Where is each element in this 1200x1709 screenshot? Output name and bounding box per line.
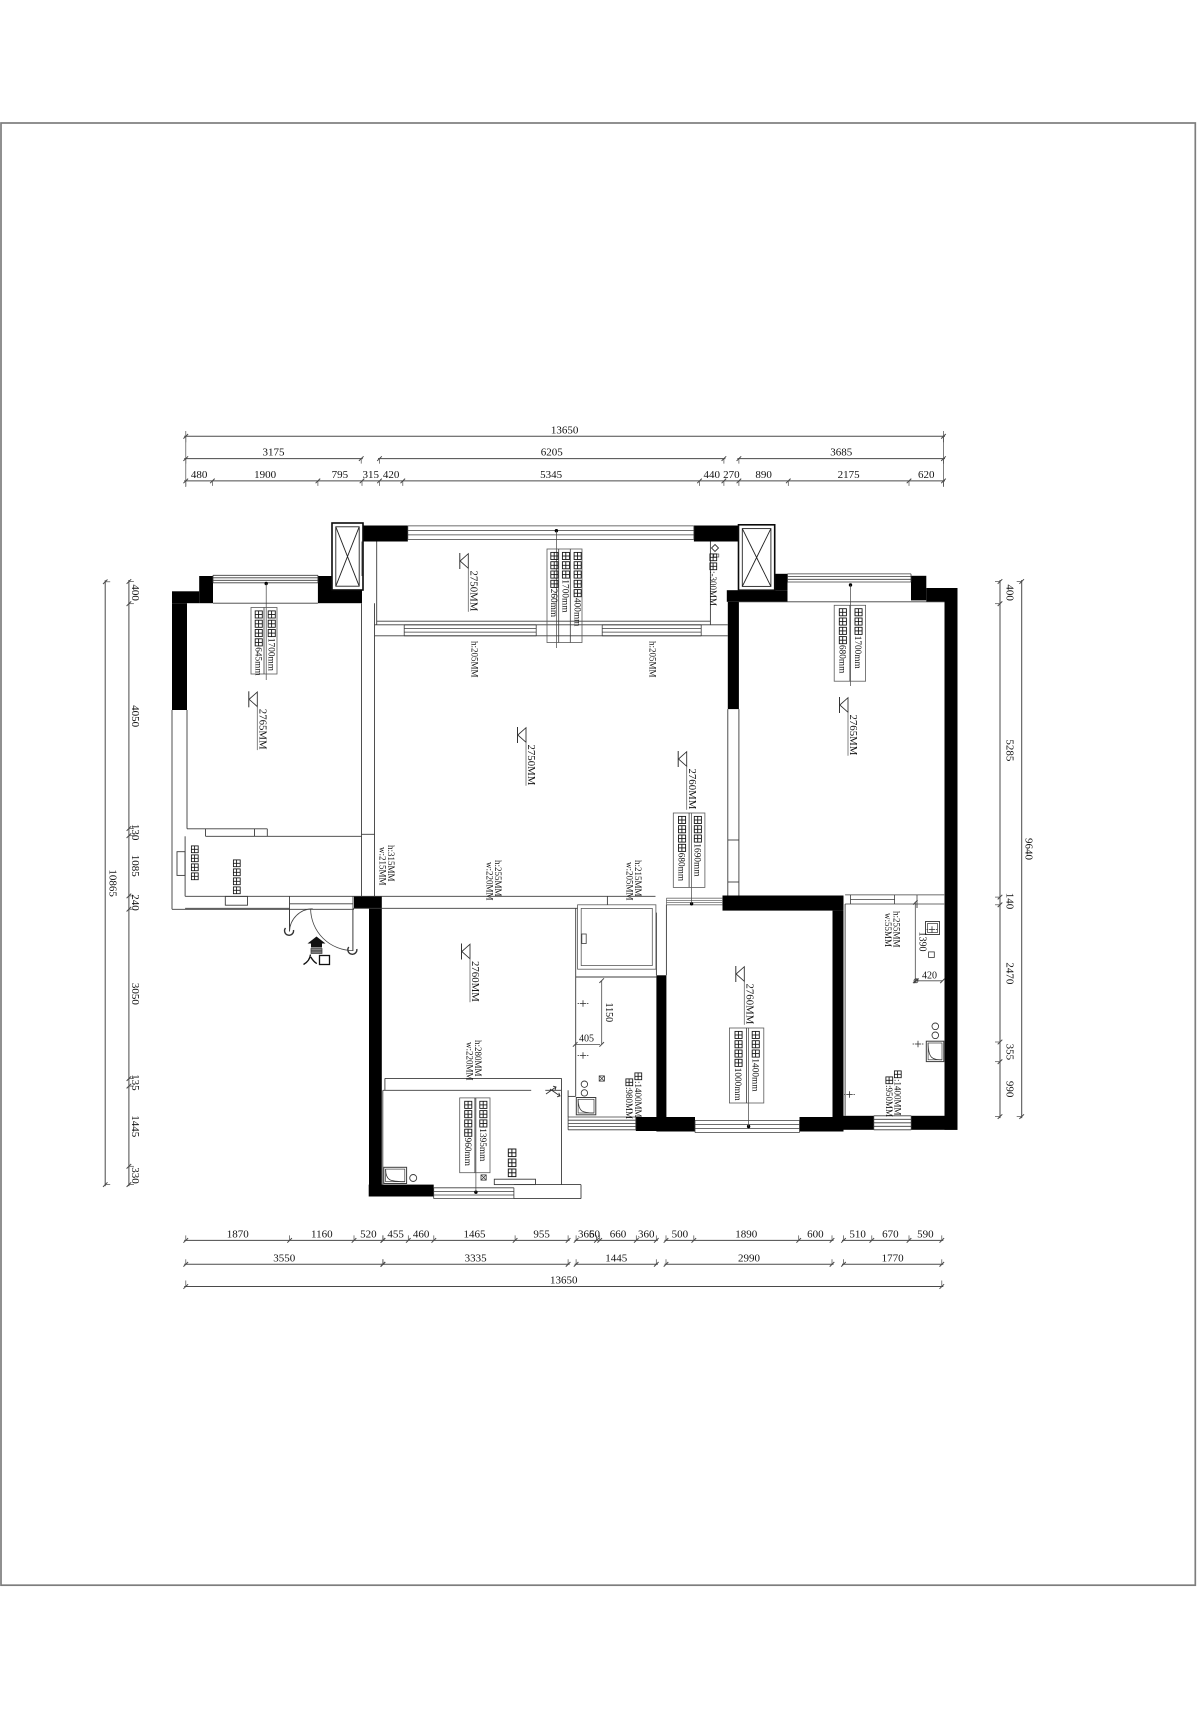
svg-text:h:205MM: h:205MM (648, 641, 658, 678)
svg-text:2750MM: 2750MM (468, 571, 480, 612)
svg-text:3685: 3685 (830, 447, 853, 459)
svg-text:620: 620 (918, 469, 935, 481)
svg-text:1900: 1900 (254, 469, 277, 481)
svg-text:1445: 1445 (129, 1115, 141, 1138)
svg-text:400mm: 400mm (571, 598, 581, 627)
svg-text:1890: 1890 (735, 1228, 758, 1240)
svg-text:5345: 5345 (540, 469, 563, 481)
svg-text:2765MM: 2765MM (847, 715, 859, 756)
svg-text:9640: 9640 (1023, 838, 1035, 861)
svg-text:w:215MM: w:215MM (378, 847, 388, 886)
svg-text:1700mm: 1700mm (560, 579, 570, 613)
svg-text:270: 270 (723, 469, 740, 481)
svg-text:2990: 2990 (738, 1252, 761, 1264)
svg-text:315: 315 (363, 469, 380, 481)
svg-text:1870: 1870 (227, 1228, 250, 1240)
svg-text:4050: 4050 (129, 705, 141, 728)
svg-text:330: 330 (129, 1167, 141, 1184)
svg-text:510: 510 (849, 1228, 866, 1240)
svg-text:5285: 5285 (1004, 739, 1016, 762)
svg-text:420: 420 (922, 970, 937, 981)
svg-text:1690mm: 1690mm (692, 843, 702, 877)
svg-text:455: 455 (387, 1228, 404, 1240)
svg-text::980MM: :980MM (624, 1087, 634, 1119)
svg-text:670: 670 (882, 1228, 899, 1240)
svg-text:w:220MM: w:220MM (464, 1042, 474, 1081)
svg-text:10865: 10865 (107, 869, 119, 897)
svg-text:360: 360 (638, 1228, 655, 1240)
svg-text:1150: 1150 (603, 1003, 614, 1023)
svg-text:260mm: 260mm (548, 589, 558, 618)
svg-text:460: 460 (413, 1228, 430, 1240)
svg-text:3175: 3175 (263, 447, 286, 459)
svg-text:h:205MM: h:205MM (470, 641, 480, 678)
svg-text:1400mm: 1400mm (749, 1058, 759, 1092)
svg-text:1700mm: 1700mm (852, 636, 862, 670)
svg-text:3050: 3050 (129, 983, 141, 1006)
svg-text:240: 240 (129, 894, 141, 911)
svg-text:680mm: 680mm (676, 853, 686, 882)
svg-text:1395mm: 1395mm (477, 1128, 487, 1162)
svg-text:1465: 1465 (464, 1228, 487, 1240)
svg-text:2750MM: 2750MM (525, 745, 537, 786)
svg-text:355: 355 (1004, 1044, 1016, 1061)
svg-text:3335: 3335 (465, 1252, 488, 1264)
svg-text:1700mm: 1700mm (265, 638, 275, 672)
svg-text:13650: 13650 (550, 1275, 578, 1287)
svg-text:960mm: 960mm (462, 1138, 472, 1167)
svg-text:2765MM: 2765MM (257, 709, 269, 750)
svg-text:1770: 1770 (882, 1252, 905, 1264)
svg-text:2760MM: 2760MM (744, 984, 756, 1025)
svg-text:2760MM: 2760MM (469, 961, 481, 1002)
svg-text:1000mm: 1000mm (732, 1068, 742, 1102)
svg-text:440: 440 (703, 469, 720, 481)
svg-text:13650: 13650 (551, 424, 579, 436)
svg-text:2470: 2470 (1004, 962, 1016, 985)
svg-text:1445: 1445 (605, 1252, 628, 1264)
svg-text:680mm: 680mm (837, 645, 847, 674)
svg-text:1160: 1160 (311, 1228, 333, 1240)
svg-text:420: 420 (383, 469, 400, 481)
svg-text:w:205MM: w:205MM (625, 862, 635, 901)
svg-text:130: 130 (129, 824, 141, 841)
svg-text:60: 60 (589, 1228, 601, 1240)
svg-text:660: 660 (610, 1228, 627, 1240)
svg-text:140: 140 (1004, 893, 1016, 910)
svg-text:405: 405 (579, 1034, 594, 1045)
svg-text::-300MM: :-300MM (708, 571, 718, 606)
svg-text:135: 135 (129, 1074, 141, 1091)
svg-text:2175: 2175 (838, 469, 861, 481)
svg-text:645mm: 645mm (252, 647, 262, 676)
svg-text:1085: 1085 (129, 855, 141, 878)
svg-text:400: 400 (129, 584, 141, 601)
svg-text:990: 990 (1004, 1081, 1016, 1098)
svg-text:500: 500 (672, 1228, 689, 1240)
svg-text:w:55MM: w:55MM (883, 913, 893, 947)
svg-text:w:220MM: w:220MM (485, 862, 495, 901)
svg-text:400: 400 (1004, 584, 1016, 601)
svg-text:480: 480 (191, 469, 208, 481)
svg-text:520: 520 (360, 1228, 377, 1240)
svg-text:3550: 3550 (273, 1252, 296, 1264)
svg-text:890: 890 (755, 469, 772, 481)
svg-text:2760MM: 2760MM (686, 769, 698, 810)
svg-text:795: 795 (332, 469, 349, 481)
svg-text:600: 600 (807, 1228, 824, 1240)
svg-text:1390: 1390 (917, 932, 928, 952)
svg-text::950MM: :950MM (884, 1085, 894, 1117)
svg-text:590: 590 (917, 1228, 934, 1240)
svg-text:955: 955 (533, 1228, 550, 1240)
svg-text:6205: 6205 (541, 447, 564, 459)
